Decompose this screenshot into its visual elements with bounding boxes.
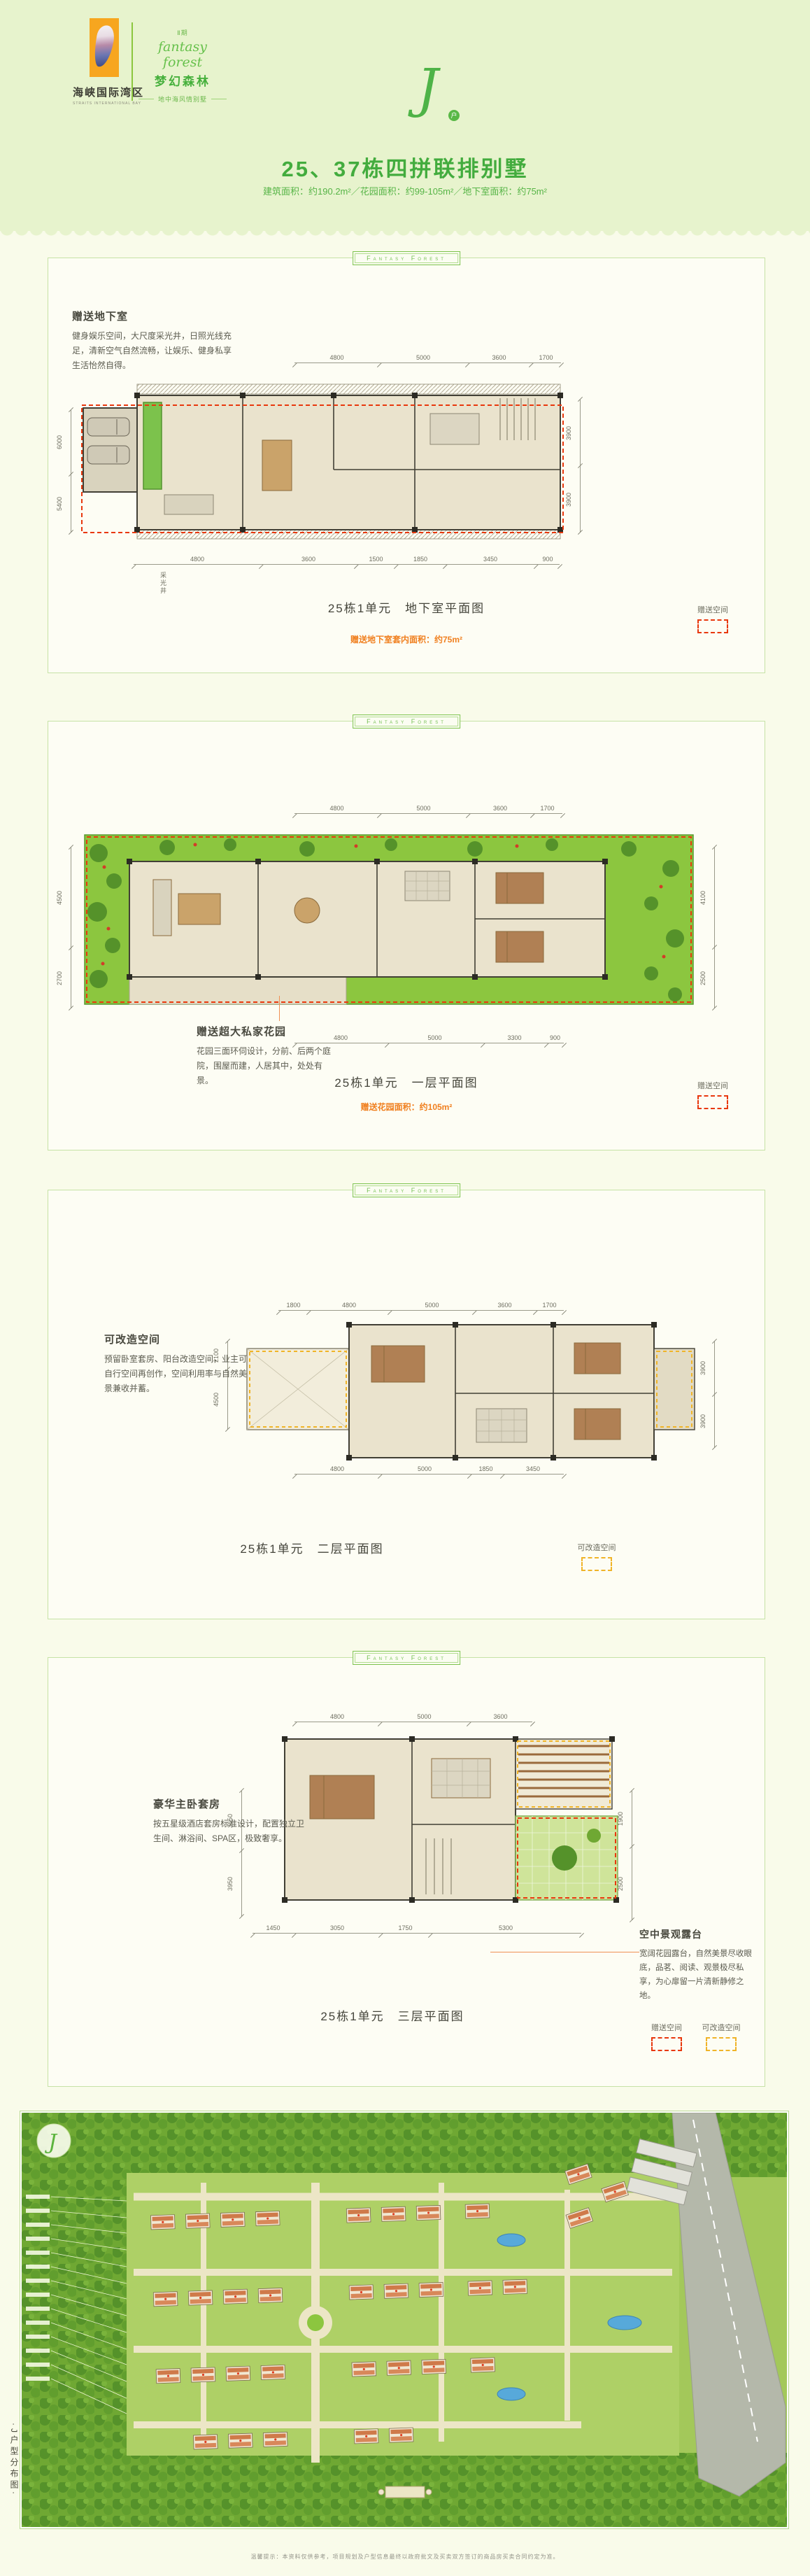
feature-basement: 赠送地下室 健身娱乐空间，大尺度采光井，日照光线充足，清新空气自然流畅，让娱乐、…: [72, 309, 236, 373]
disclaimer: 温馨提示：本资料仅供参考，项目规划及户型信息最终以政府批文及买卖双方签订的商品房…: [0, 2553, 810, 2561]
logo-island-icon: [90, 18, 119, 77]
dim-row-bottom: 4800 3600 1500 1850 3450 900: [134, 556, 560, 568]
brochure-page: 海峡国际湾区 STRAITS INTERNATIONAL BAY Ⅱ期 fant…: [0, 0, 810, 2576]
plan-caption: 25栋1单元 三层平面图: [253, 2006, 532, 2024]
gift-dash-swatch: [697, 619, 728, 633]
gift-note: 赠送地下室套内面积：约75m²: [267, 633, 546, 645]
legend-convert: 可改造空间: [699, 2022, 744, 2051]
legend-gift: 赠送空间: [693, 1080, 732, 1109]
legend-convert: 可改造空间: [574, 1542, 619, 1571]
project-tagline: 地中海风情别墅: [138, 94, 227, 104]
convert-dash-swatch: [706, 2037, 737, 2051]
panel-third-floor: Fantasy Forest 4800 5000 3600 1450 3050 …: [48, 1657, 765, 2087]
script-logotype: fantasy forest: [138, 39, 227, 70]
unit-monogram: J: [417, 62, 438, 115]
project-name: 梦幻森林: [138, 71, 227, 89]
dim-row-top: 4800 5000 3600 1700: [294, 355, 561, 366]
project-block: Ⅱ期 fantasy forest 梦幻森林 地中海风情别墅: [138, 28, 227, 104]
gift-dash-swatch: [651, 2037, 682, 2051]
leader-line: [279, 996, 280, 1021]
plan-label-lightwell: 采光井: [159, 572, 168, 595]
gift-note: 赠送花园面积：约105m²: [267, 1101, 546, 1113]
dim-col-left: 6000 5400: [65, 410, 75, 533]
ribbon: Fantasy Forest: [353, 715, 460, 729]
leader-line: [490, 1952, 639, 1952]
plan-caption: 25栋1单元 地下室平面图: [267, 598, 546, 616]
logo-en-name: STRAITS INTERNATIONAL BAY: [73, 101, 136, 106]
panel-first-floor: Fantasy Forest 4800 5000 3600 1700 4800 …: [48, 721, 765, 1150]
convert-dash-swatch: [581, 1557, 612, 1571]
feature-master-suite: 豪华主卧套房 按五星级酒店套房标准设计，配置独立卫生间、淋浴间、SPA区，极致奢…: [153, 1796, 311, 1846]
masterplan-frame: J: [20, 2111, 789, 2529]
feature-convertible: 可改造空间 预留卧室套房、阳台改造空间，业主可自行空间再创作，空间利用率与自然美…: [104, 1332, 255, 1396]
dim-col-right: 3900 3900: [574, 400, 584, 533]
plan-caption: 25栋1单元 一层平面图: [267, 1073, 546, 1090]
gift-dash-swatch: [697, 1095, 728, 1109]
floor-plan-basement: [80, 372, 570, 552]
page-title: 25、37栋四拼联排别墅: [0, 151, 810, 183]
dim-row-bottom: 1450 3050 1750 5300: [253, 1925, 581, 1936]
map-side-caption: ·J户型分布图·: [8, 2423, 20, 2497]
masterplan-map: J: [22, 2113, 787, 2527]
feature-sky-terrace: 空中景观露台 宽阔花园露台，自然美景尽收眼底，品茗、阅读、观景极尽私享，为心扉留…: [639, 1927, 760, 2004]
unit-badge: 户: [448, 110, 460, 121]
floor-plan-second: [246, 1318, 704, 1465]
ribbon: Fantasy Forest: [353, 251, 460, 265]
scallop-divider: [0, 231, 810, 241]
dim-row-top: 1800 4800 5000 3600 1700: [278, 1302, 564, 1314]
dim-row-top: 4800 5000 3600 1700: [294, 805, 562, 817]
panel-second-floor: Fantasy Forest 1800 4800 5000 3600 1700 …: [48, 1190, 765, 1619]
ribbon: Fantasy Forest: [353, 1651, 460, 1665]
logo-name: 海峡国际湾区: [73, 85, 136, 99]
dim-col-left: 4500 2700: [65, 847, 75, 1008]
floor-plan-first: [83, 826, 695, 1014]
header-divider: [132, 22, 133, 101]
legend-gift: 赠送空间: [647, 2022, 686, 2051]
plan-caption: 25栋1单元 二层平面图: [172, 1539, 452, 1556]
phase-label: Ⅱ期: [138, 28, 227, 37]
dim-col-right: 1900 2500: [626, 1791, 636, 1920]
dim-col-right: 4100 2500: [709, 847, 718, 1008]
dim-row-top: 4800 5000 3600: [294, 1714, 532, 1725]
legend-gift: 赠送空间: [693, 604, 732, 633]
panel-basement: Fantasy Forest 赠送地下室 健身娱乐空间，大尺度采光井，日照光线充…: [48, 258, 765, 673]
legend-row: 赠送空间 可改造空间: [647, 2022, 744, 2051]
dim-col-right: 3900 3900: [709, 1342, 718, 1448]
page-subtitle: 建筑面积：约190.2m²／花园面积：约99-105m²／地下室面积：约75m²: [0, 184, 810, 197]
brand-logo: 海峡国际湾区 STRAITS INTERNATIONAL BAY: [73, 18, 136, 106]
ribbon: Fantasy Forest: [353, 1183, 460, 1197]
dim-row-bottom: 4800 5000 1850 3450: [294, 1466, 564, 1477]
